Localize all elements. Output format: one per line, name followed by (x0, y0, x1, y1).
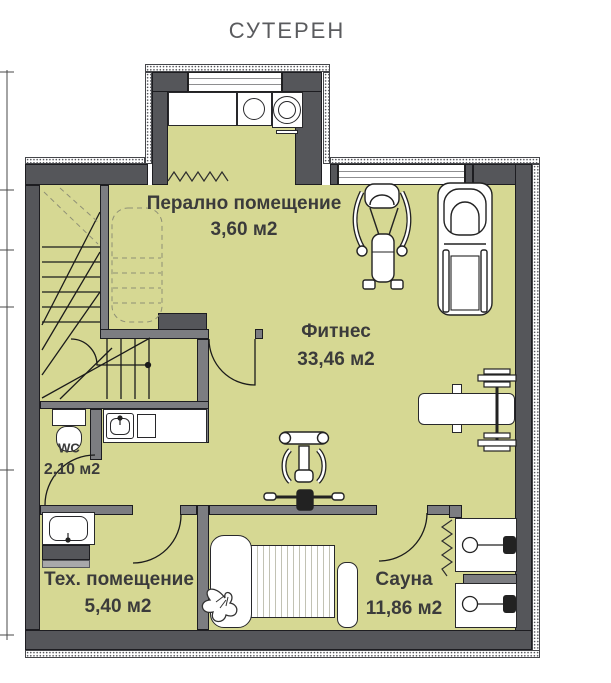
shower-head-b-icon (463, 597, 505, 612)
sauna-heater-zigzag-icon (442, 520, 452, 576)
barbell-icon (478, 369, 516, 451)
label-fitness-name: Фитнес (301, 321, 371, 343)
taps (66, 416, 122, 542)
elliptical-trainer-icon (355, 184, 409, 289)
door-fitness (209, 339, 255, 385)
label-fitness-area: 33,46 м2 (297, 349, 374, 371)
label-wc-area: 2,10 м2 (44, 461, 100, 479)
shower-valve-b (503, 595, 516, 613)
treadmill-icon (438, 183, 492, 315)
door-swings (45, 339, 427, 563)
label-tech-area: 5,40 м2 (85, 596, 152, 618)
page-title: СУТЕРЕН (229, 18, 345, 44)
label-sauna-name: Сауна (375, 569, 432, 591)
label-wc-name: WC (58, 441, 80, 456)
staircase-icon (42, 212, 151, 399)
stair-projection-dashed (44, 188, 162, 322)
label-tech-name: Тех. помещение (44, 569, 194, 591)
plant-icon (202, 589, 236, 621)
door-sauna (379, 513, 427, 561)
floor-plan-basement: СУТЕРЕН Перално помещение 3,60 м2 Фитнес… (0, 0, 611, 683)
radiator-zigzag-icon (168, 172, 228, 181)
shower-symbols (463, 536, 517, 613)
door-tech (133, 515, 181, 563)
exercise-bike-icon (264, 432, 344, 510)
label-laundry-area: 3,60 м2 (211, 219, 278, 241)
label-laundry-name: Перално помещение (147, 193, 342, 215)
dimension-line (0, 70, 14, 640)
label-sauna-area: 11,86 м2 (366, 598, 442, 620)
shower-valve-a (503, 536, 516, 554)
shower-head-a-icon (463, 538, 505, 553)
